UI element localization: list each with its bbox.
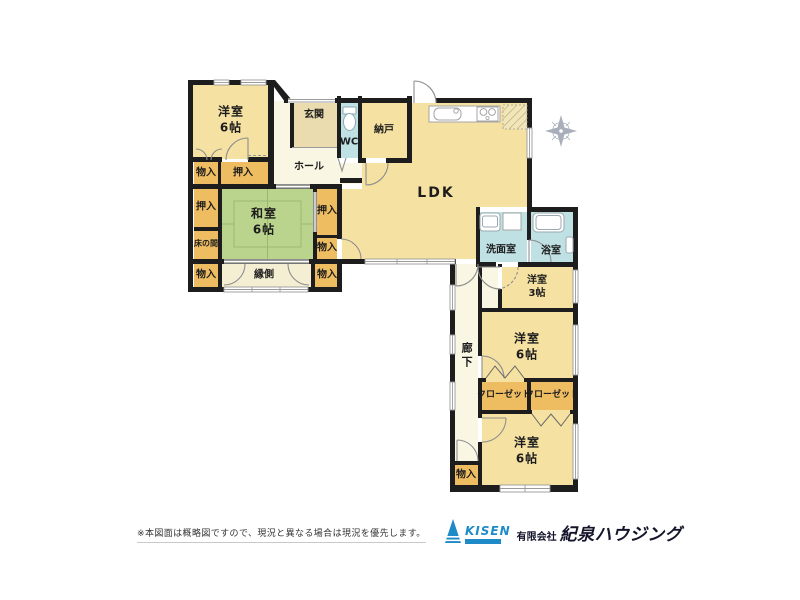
company-logo: KISEN 有限会社 紀泉ハウジング [443, 517, 682, 545]
room-label-engawa: 縁側 [254, 269, 274, 282]
room-fills [193, 85, 573, 485]
room-label-storage-e: 物入 [456, 469, 476, 482]
company-prefix: 有限会社 [517, 528, 557, 543]
room-label-tokonoma: 床の間 [194, 239, 218, 249]
room-label-storage-c: 物入 [196, 269, 216, 282]
room-label-bedroom-nw: 洋室 6帖 [218, 104, 244, 135]
room-label-nando: 納戸 [374, 124, 394, 137]
room-label-storage-a: 物入 [196, 167, 216, 180]
room-label-hall: ホール [294, 161, 324, 174]
room-label-wc: WC [340, 136, 358, 149]
compass-icon [545, 115, 577, 147]
room-label-closet-b: クローゼット [525, 390, 579, 402]
company-name: 紀泉ハウジング [560, 526, 683, 545]
kisen-wordmark: KISEN [465, 525, 511, 544]
room-label-genkan: 玄関 [304, 109, 324, 122]
room-label-washitsu: 和室 6帖 [251, 206, 277, 237]
kisen-logo-icon [443, 517, 463, 545]
room-label-oshiire-b: 押入 [196, 201, 216, 214]
room-label-senmenshitsu: 洗面室 [486, 244, 516, 257]
toilet-icon [343, 107, 356, 131]
room-label-bedroom-e6: 洋室 6帖 [514, 331, 540, 362]
kisen-text: KISEN [465, 525, 511, 537]
kisen-bar [465, 539, 501, 544]
room-label-storage-d: 物入 [317, 269, 337, 282]
floorplan-drawing [0, 0, 800, 600]
disclaimer-note: ※本図面は概略図ですので、現況と異なる場合は現況を優先します。 [137, 526, 426, 543]
room-label-bedroom-s6: 洋室 6帖 [514, 435, 540, 466]
room-label-rouka: 廊下 [459, 342, 473, 370]
room-label-oshiire-c: 押入 [317, 205, 337, 218]
refrigerator-space [503, 105, 527, 129]
room-label-closet-a: クローゼット [477, 390, 531, 402]
room-label-yokushitsu: 浴室 [541, 245, 561, 258]
room-label-bedroom-e3: 洋室 3帖 [527, 274, 547, 300]
room-label-oshiire-a: 押入 [233, 167, 253, 180]
room-label-storage-b: 物入 [317, 242, 337, 255]
floorplan-page: 洋室 6帖 玄関 WC 納戸 ホール 物入 押入 押入 床の間 和室 6帖 押入… [0, 0, 800, 600]
kitchen-counter [429, 106, 500, 122]
room-label-ldk: LDK [417, 184, 454, 202]
